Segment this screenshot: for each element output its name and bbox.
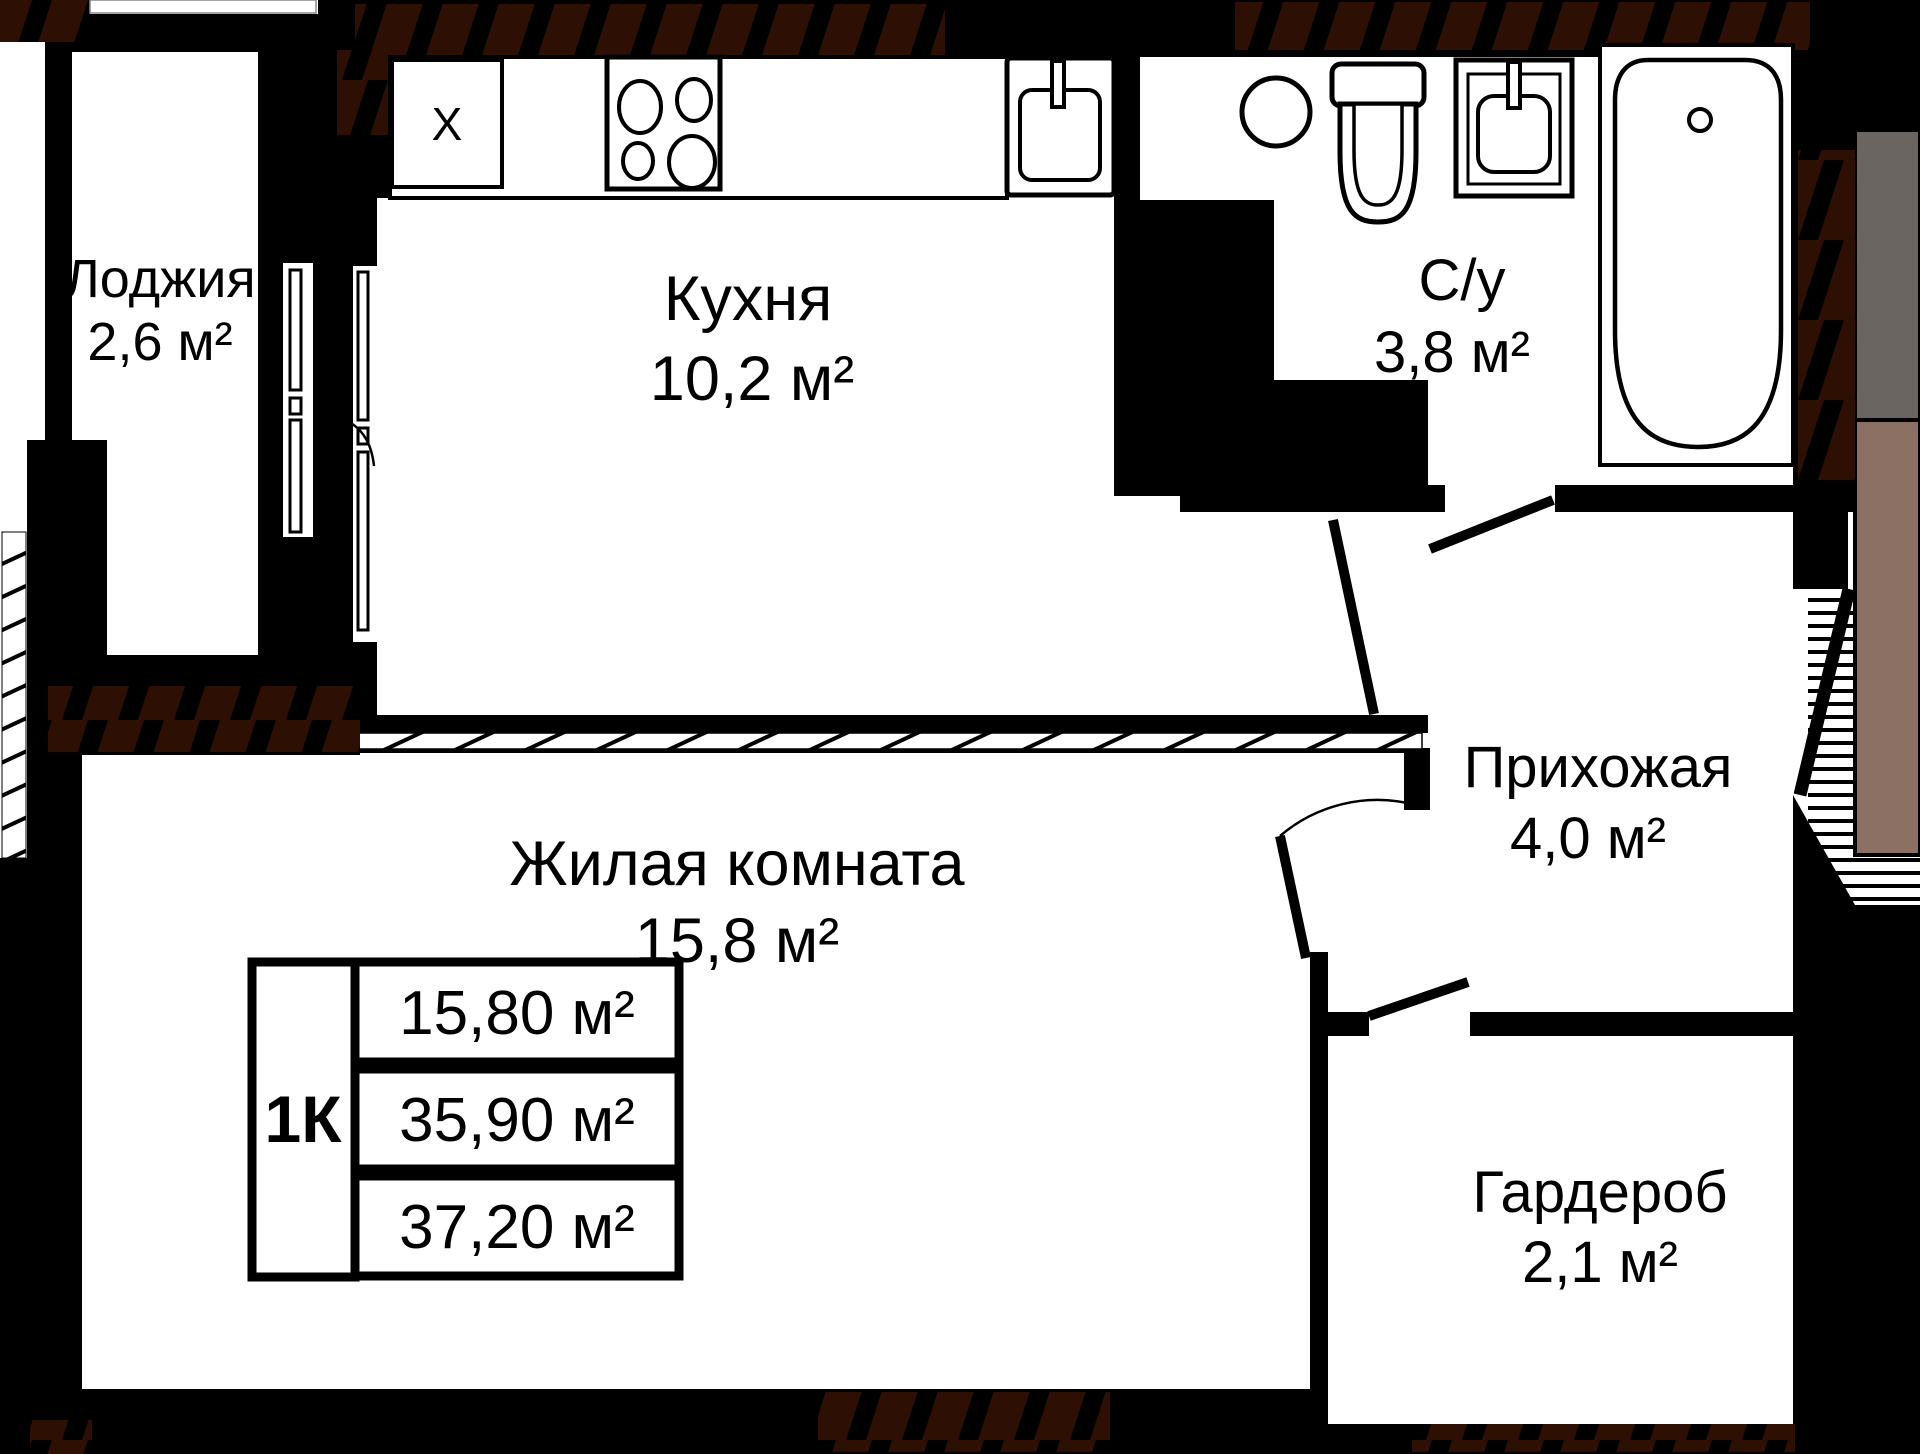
wall-living-east <box>1310 952 1328 1424</box>
wall-junction-stub <box>1404 748 1430 810</box>
area-info-table: 1К 15,80 м² 35,90 м² 37,20 м² <box>252 962 679 1277</box>
wall-bath-bottom-left <box>1180 485 1445 512</box>
bathroom-sink-icon <box>1456 60 1572 196</box>
hatch-under-loggia <box>48 686 360 752</box>
table-type-label: 1К <box>265 1082 343 1156</box>
floor-plan-svg: Х <box>0 0 1920 1454</box>
hatch-bottom-wardrobe <box>1412 1424 1795 1452</box>
kitchen-fixtures: Х <box>390 57 1114 198</box>
table-full-area: 37,20 м² <box>399 1193 635 1262</box>
wall-shaft <box>1114 200 1274 496</box>
wall-cut-strip <box>2 532 26 858</box>
bathtub-drain-icon <box>1689 109 1711 131</box>
neighbor-block-gray <box>1855 130 1920 420</box>
toilet-icon <box>1332 64 1424 222</box>
label-bathroom-area: 3,8 м² <box>1374 320 1530 385</box>
wall-east-bottom <box>1793 905 1920 1454</box>
wall-entry-top <box>1793 512 1848 589</box>
kitchen-sink-icon <box>1007 58 1114 195</box>
wall-west <box>27 755 82 1454</box>
wall-bath-bottom-right <box>1555 485 1795 512</box>
window-frame-icon <box>290 270 301 390</box>
label-kitchen: Кухня <box>664 264 833 334</box>
wall-west-outer <box>0 858 30 1454</box>
window-frame-icon <box>290 420 301 532</box>
bathtub-icon <box>1600 45 1793 465</box>
neighbor-block-beige <box>1855 420 1920 855</box>
balcony-door-leaf-icon <box>358 452 368 630</box>
hatch-top-left <box>0 0 90 42</box>
table-living-area: 15,80 м² <box>399 979 635 1048</box>
table-total-area: 35,90 м² <box>399 1086 635 1155</box>
wall-wardrobe-top-right <box>1470 1012 1795 1036</box>
fridge-label: Х <box>432 98 463 150</box>
wall-partition-top <box>337 715 1428 733</box>
hatch-east <box>1798 150 1855 480</box>
wall-kitchen-bath <box>1114 57 1140 207</box>
label-loggia: Лоджия <box>64 249 255 309</box>
label-kitchen-area: 10,2 м² <box>650 344 854 414</box>
wall-loggia-left-lower <box>27 440 107 657</box>
label-hallway-area: 4,0 м² <box>1510 806 1666 871</box>
label-wardrobe-area: 2,1 м² <box>1522 1230 1678 1295</box>
label-bathroom: С/у <box>1419 248 1506 313</box>
label-wardrobe: Гардероб <box>1472 1160 1727 1225</box>
hatch-bottom-left <box>30 1420 92 1454</box>
wall-loggia-left-upper <box>45 14 72 444</box>
partition-hatch <box>337 733 1422 749</box>
label-hallway: Прихожая <box>1464 735 1733 800</box>
washbasin-icon <box>1242 78 1310 146</box>
window-frame-icon <box>290 398 301 414</box>
neighbor-loggia-sliver <box>90 0 316 13</box>
wall-wardrobe-top-left <box>1327 1012 1369 1036</box>
hatch-bottom-living <box>818 1392 1110 1452</box>
hatch-top-bath <box>1235 2 1810 50</box>
label-living: Жилая комната <box>509 829 965 899</box>
balcony-door-leaf-icon <box>358 272 368 420</box>
wall-shaft-ext <box>1270 380 1428 496</box>
stove-icon <box>607 57 720 189</box>
label-loggia-area: 2,6 м² <box>87 312 232 372</box>
floor-plan: Х <box>0 0 1920 1454</box>
